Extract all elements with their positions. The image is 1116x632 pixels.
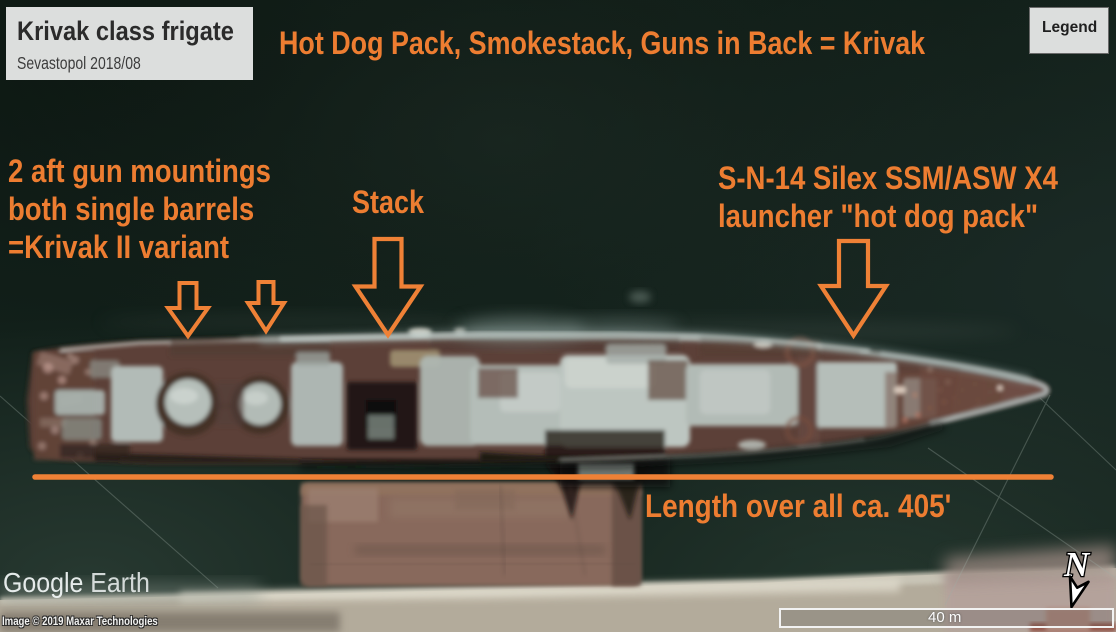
svg-text:N: N — [1063, 545, 1091, 584]
